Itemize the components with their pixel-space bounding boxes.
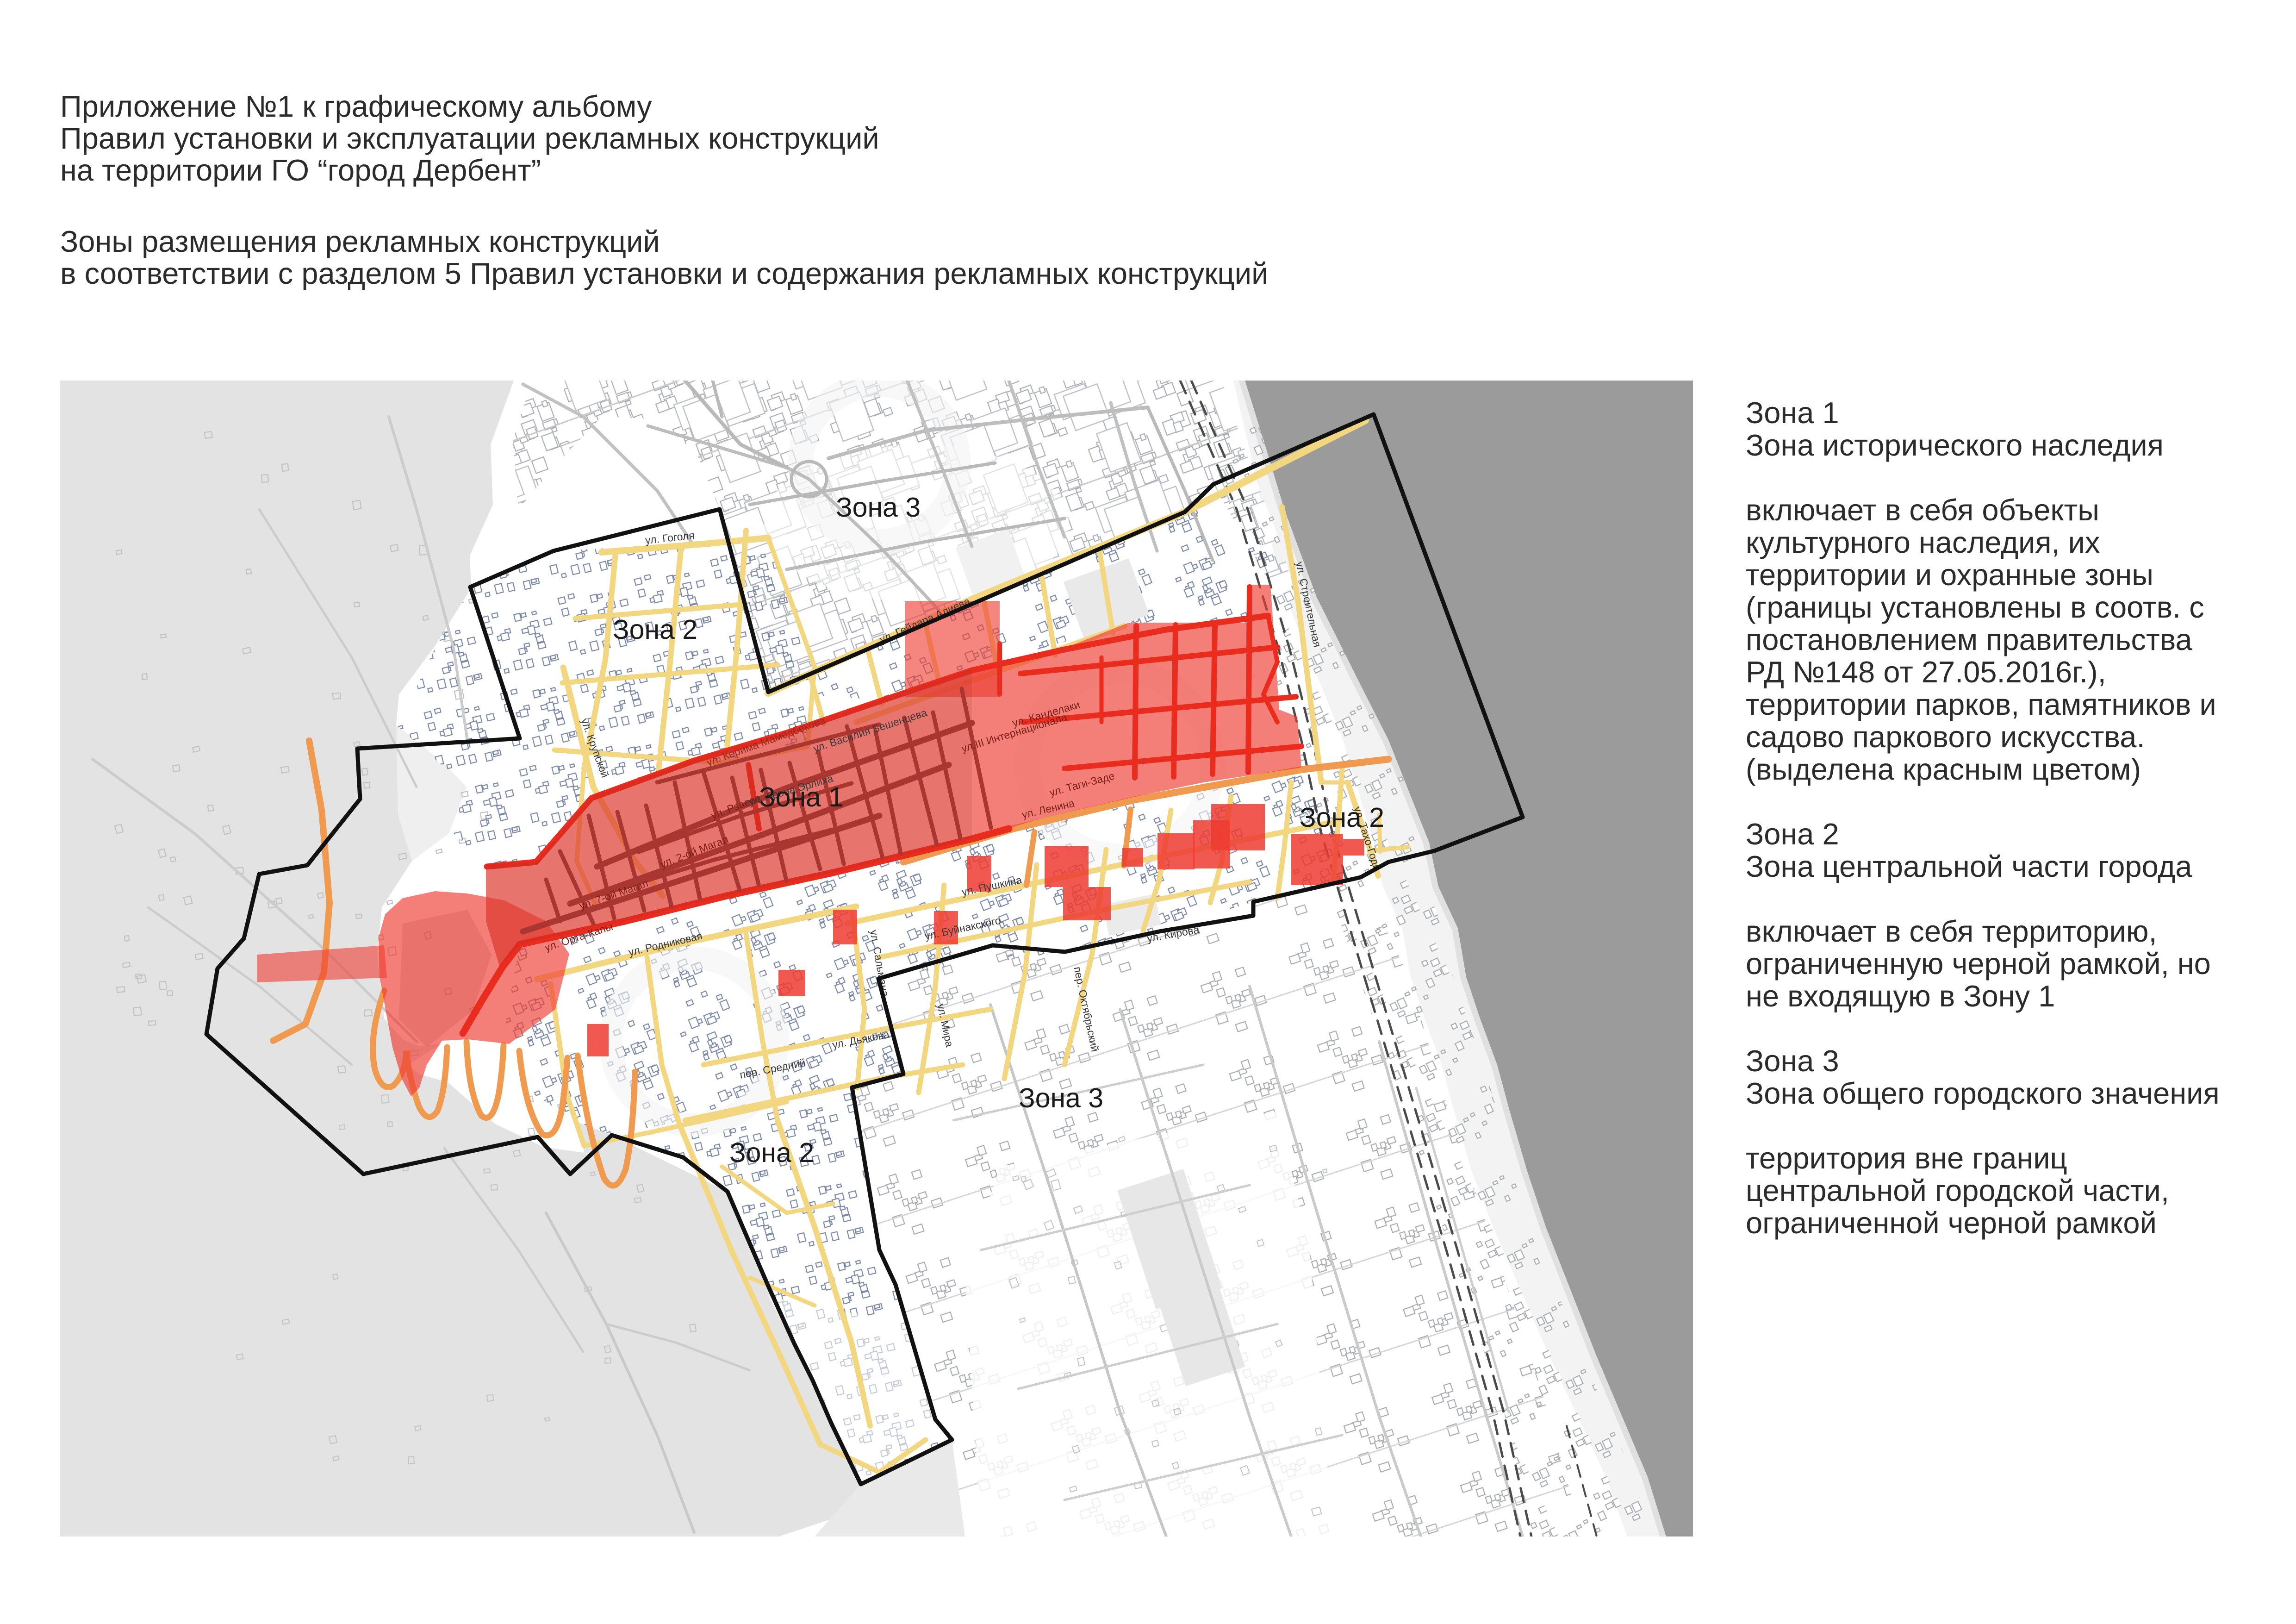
svg-text:Зона 2: Зона 2 [729, 1137, 814, 1168]
svg-text:Зона 3: Зона 3 [1019, 1083, 1103, 1113]
svg-text:Зона 2: Зона 2 [1300, 802, 1384, 833]
svg-text:Зона 1: Зона 1 [759, 782, 844, 812]
svg-text:Зона 2: Зона 2 [613, 614, 697, 645]
svg-text:Зона 3: Зона 3 [836, 492, 921, 523]
